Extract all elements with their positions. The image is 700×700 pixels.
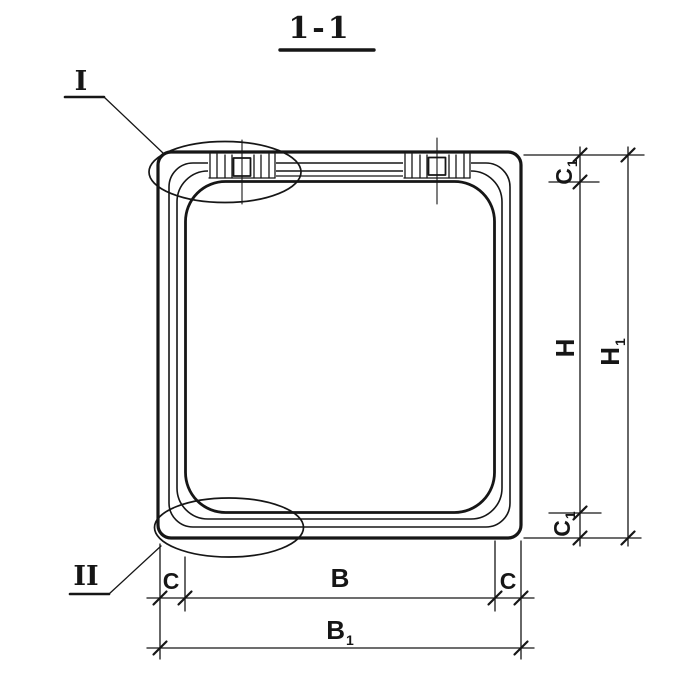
leader-line-I (104, 97, 163, 153)
dim-label-H1: H1 (595, 338, 628, 366)
dim-label-C-right: C (500, 568, 517, 594)
reinforcement-contour-inner (177, 171, 502, 519)
inner-contour (186, 182, 495, 513)
detail-callout-II: II (70, 546, 161, 594)
section-body (158, 152, 521, 538)
anchor-recess-left (208, 140, 276, 204)
dim-label-H: H (550, 339, 580, 358)
view-title: 1-1 (288, 11, 351, 46)
anchor-recess-right (403, 138, 471, 204)
dim-label-C-left: C (163, 568, 180, 594)
detail-marker-II-label: II (73, 561, 98, 592)
dim-label-C1-bottom: C1 (549, 511, 578, 537)
detail-marker-I-label: I (75, 66, 88, 97)
vertical-dimensions: C1 H C1 H1 (524, 147, 644, 546)
dim-label-C1-top: C1 (551, 159, 580, 185)
dim-label-B: B (331, 563, 350, 593)
horizontal-dimensions: C B C B1 (147, 541, 534, 659)
drawing-sheet: 1-1 (0, 0, 700, 700)
leader-line-II (109, 546, 161, 594)
dim-label-B1: B1 (326, 615, 354, 648)
outer-contour (158, 152, 521, 538)
detail-callout-I: I (65, 66, 163, 153)
reinforcement-contour-outer (169, 163, 510, 527)
section-1-1-drawing: 1-1 (0, 0, 700, 700)
